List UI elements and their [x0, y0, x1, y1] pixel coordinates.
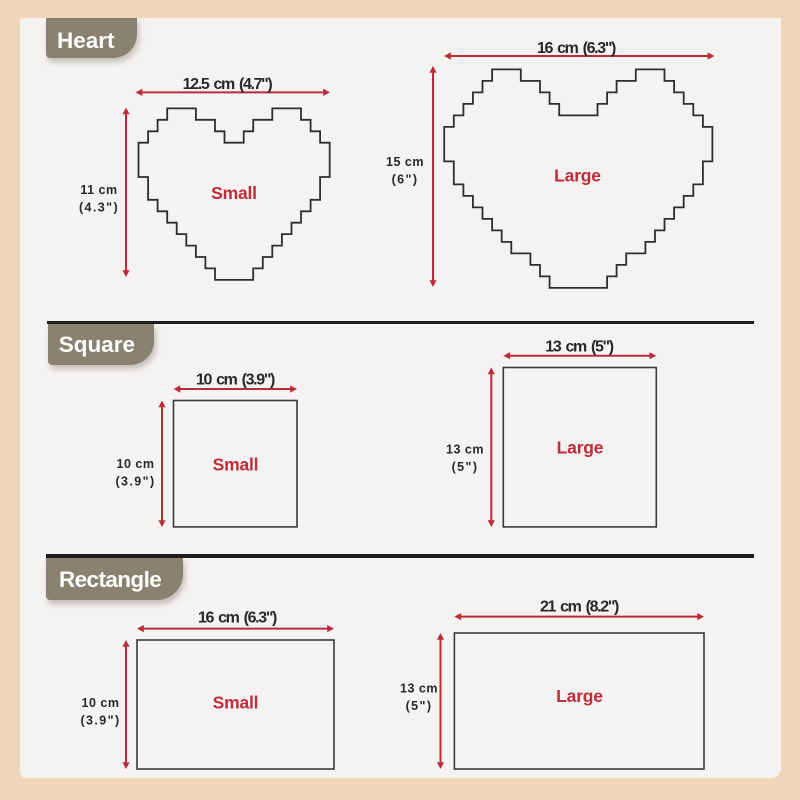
svg-text:12.5 cm (4.7"): 12.5 cm (4.7") — [183, 76, 273, 93]
svg-text:16 cm (6.3"): 16 cm (6.3") — [537, 40, 616, 57]
svg-text:Small: Small — [211, 183, 257, 203]
svg-text:(4.3"): (4.3") — [79, 201, 119, 215]
svg-text:Large: Large — [557, 438, 604, 458]
svg-text:10 cm: 10 cm — [82, 696, 120, 710]
svg-text:(5"): (5") — [406, 699, 433, 713]
svg-text:21 cm (8.2"): 21 cm (8.2") — [540, 599, 619, 616]
svg-text:13 cm (5"): 13 cm (5") — [545, 338, 613, 355]
svg-text:(3.9"): (3.9") — [80, 713, 120, 727]
svg-text:Small: Small — [213, 693, 259, 713]
svg-text:(6"): (6") — [392, 173, 419, 187]
svg-text:10 cm: 10 cm — [117, 457, 155, 471]
svg-text:11 cm: 11 cm — [80, 183, 117, 197]
svg-text:15 cm: 15 cm — [386, 155, 424, 169]
svg-text:Large: Large — [556, 686, 603, 706]
svg-text:16 cm (6.3"): 16 cm (6.3") — [198, 610, 277, 627]
svg-text:(5"): (5") — [452, 460, 479, 474]
svg-text:10 cm (3.9"): 10 cm (3.9") — [196, 372, 275, 389]
svg-text:Large: Large — [554, 166, 601, 186]
svg-text:13 cm: 13 cm — [400, 682, 438, 696]
svg-text:Small: Small — [213, 455, 259, 475]
svg-text:13 cm: 13 cm — [446, 442, 484, 456]
svg-text:(3.9"): (3.9") — [115, 475, 155, 489]
